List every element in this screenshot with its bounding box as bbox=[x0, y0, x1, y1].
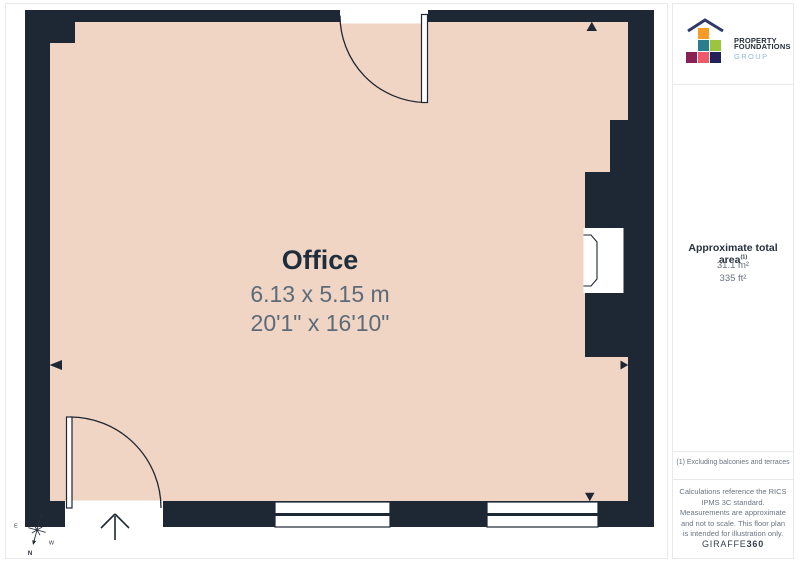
property-foundations-logo: PROPERTY FOUNDATIONS GROUP bbox=[686, 18, 791, 66]
logo-block-orange bbox=[698, 28, 709, 39]
brand-name: GIRAFFE bbox=[702, 539, 747, 549]
disclaimer-text: Calculations reference the RICS IPMS 3C … bbox=[678, 487, 788, 540]
logo-wordmark: PROPERTY FOUNDATIONS GROUP bbox=[734, 38, 791, 61]
logo-line-group: GROUP bbox=[734, 54, 791, 61]
brand-suffix: 360 bbox=[747, 539, 764, 549]
logo-block-navy bbox=[710, 52, 721, 63]
room-name: Office bbox=[282, 245, 359, 275]
logo-line-foundations: FOUNDATIONS bbox=[734, 44, 791, 51]
compass-label-south: S bbox=[40, 515, 44, 521]
compass-label-west: W bbox=[49, 541, 55, 547]
sidebar-divider-2 bbox=[673, 451, 793, 452]
floorplan-page: Office 6.13 x 5.15 m 20'1" x 16'10" S E … bbox=[0, 0, 800, 565]
room-dimensions-imperial: 20'1" x 16'10" bbox=[251, 310, 390, 336]
logo-block-green bbox=[710, 40, 721, 51]
door-entrance-leaf bbox=[67, 417, 73, 508]
logo-block-teal bbox=[698, 40, 709, 51]
property-foundations-logo-icon bbox=[686, 18, 726, 66]
sidebar: PROPERTY FOUNDATIONS GROUP Approximate t… bbox=[672, 3, 794, 559]
door-top-opening bbox=[340, 9, 428, 24]
sidebar-divider-1 bbox=[673, 84, 793, 85]
compass-label-east: E bbox=[14, 524, 18, 530]
sidebar-divider-3 bbox=[673, 479, 793, 480]
compass-north-arrow bbox=[32, 540, 36, 545]
giraffe360-brand: GIRAFFE360 bbox=[673, 539, 793, 549]
window-bottom-left bbox=[275, 502, 390, 527]
logo-block-red bbox=[698, 52, 709, 63]
door-top-leaf bbox=[422, 15, 428, 103]
logo-block-plum bbox=[686, 52, 697, 63]
fireplace-recess bbox=[584, 228, 624, 293]
area-metric-value: 31.1 m² bbox=[673, 260, 793, 271]
area-footnote: (1) Excluding balconies and terraces bbox=[673, 459, 793, 466]
area-imperial-value: 335 ft² bbox=[673, 273, 793, 284]
compass-label-north: N bbox=[28, 551, 32, 557]
floorplan-canvas: Office 6.13 x 5.15 m 20'1" x 16'10" S E … bbox=[0, 0, 668, 565]
window-bottom-right bbox=[487, 502, 598, 527]
room-dimensions-metric: 6.13 x 5.15 m bbox=[250, 281, 389, 307]
